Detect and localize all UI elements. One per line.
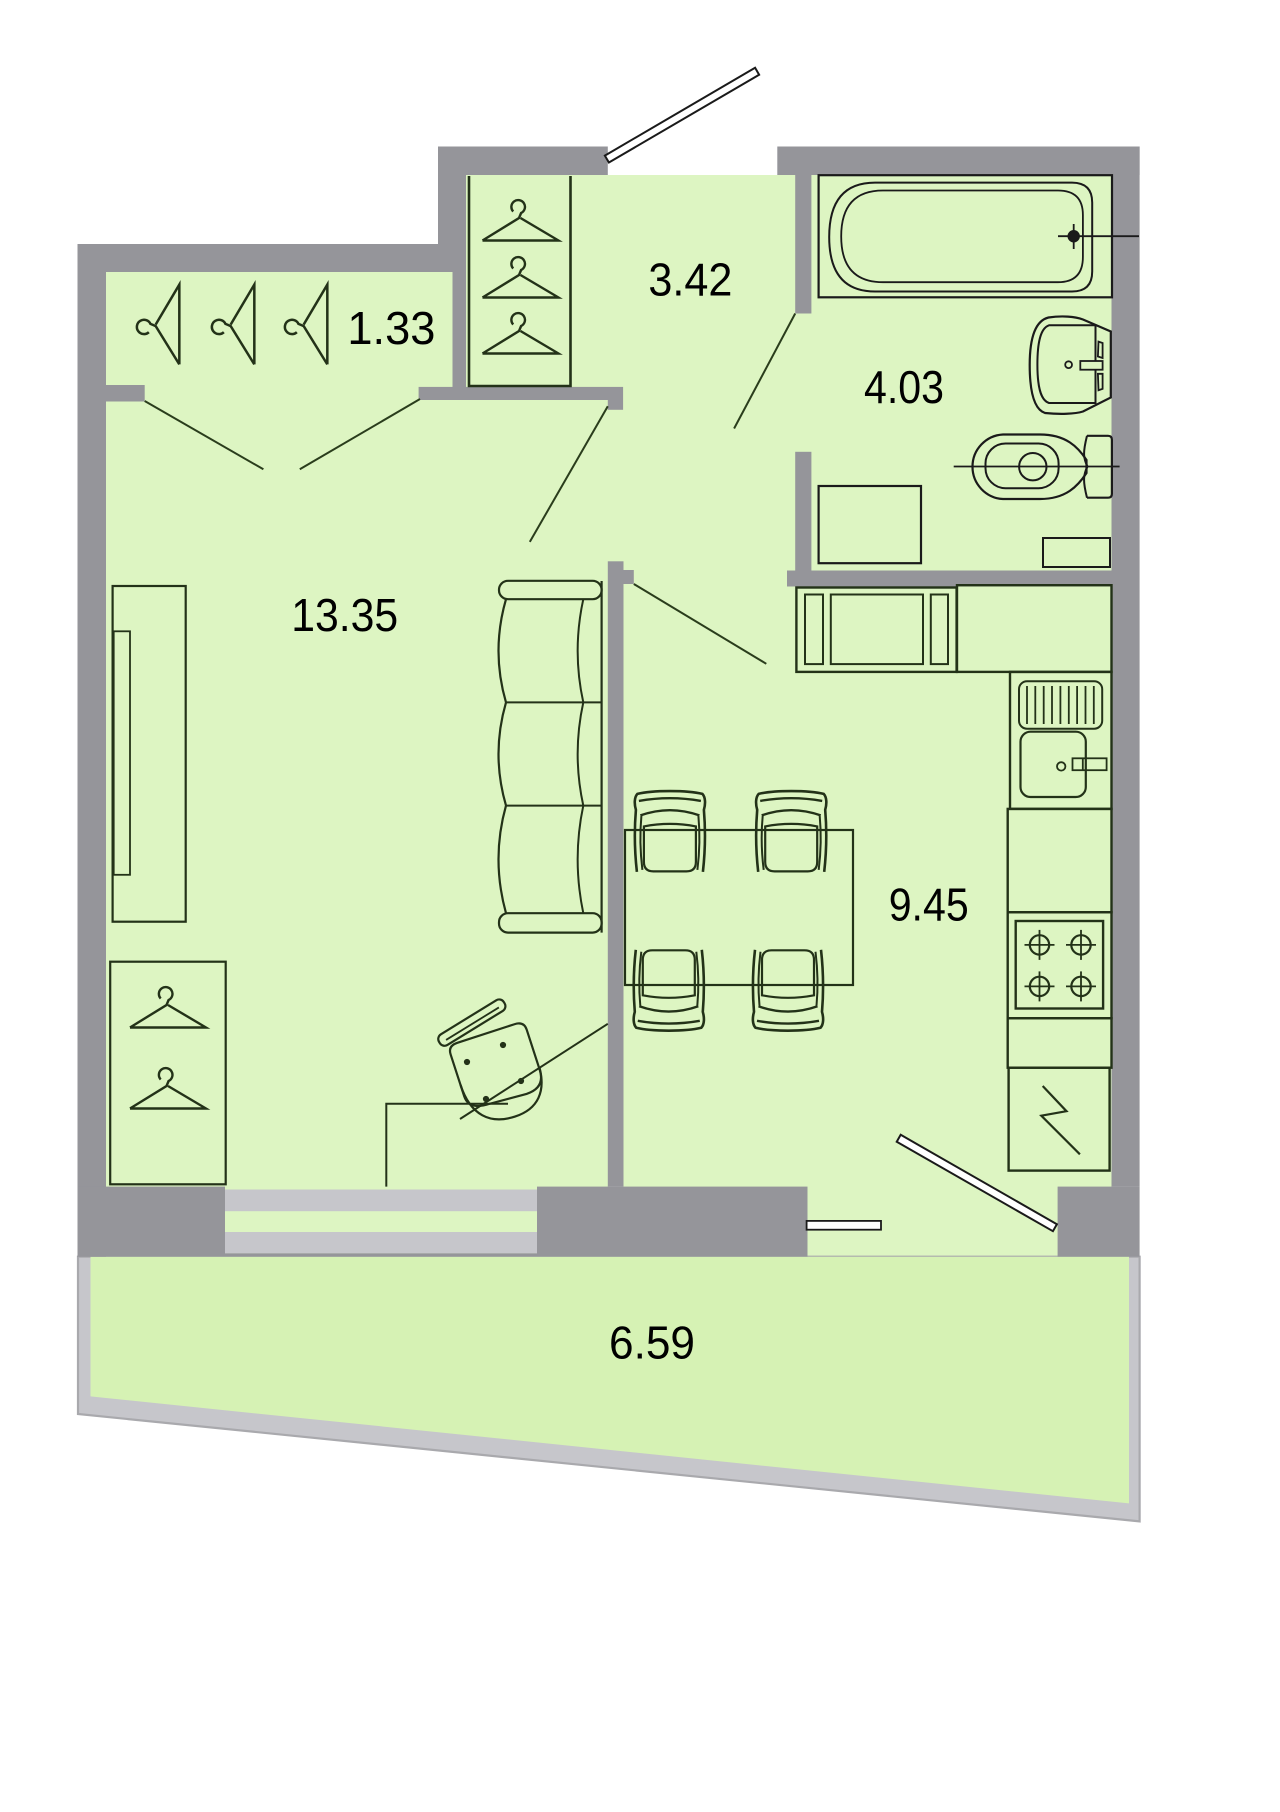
svg-text:9.45: 9.45 xyxy=(889,879,969,931)
svg-text:4.03: 4.03 xyxy=(864,361,944,413)
svg-text:3.42: 3.42 xyxy=(648,254,732,306)
svg-text:13.35: 13.35 xyxy=(291,589,398,641)
svg-text:1.33: 1.33 xyxy=(347,302,435,354)
svg-text:6.59: 6.59 xyxy=(609,1317,695,1369)
